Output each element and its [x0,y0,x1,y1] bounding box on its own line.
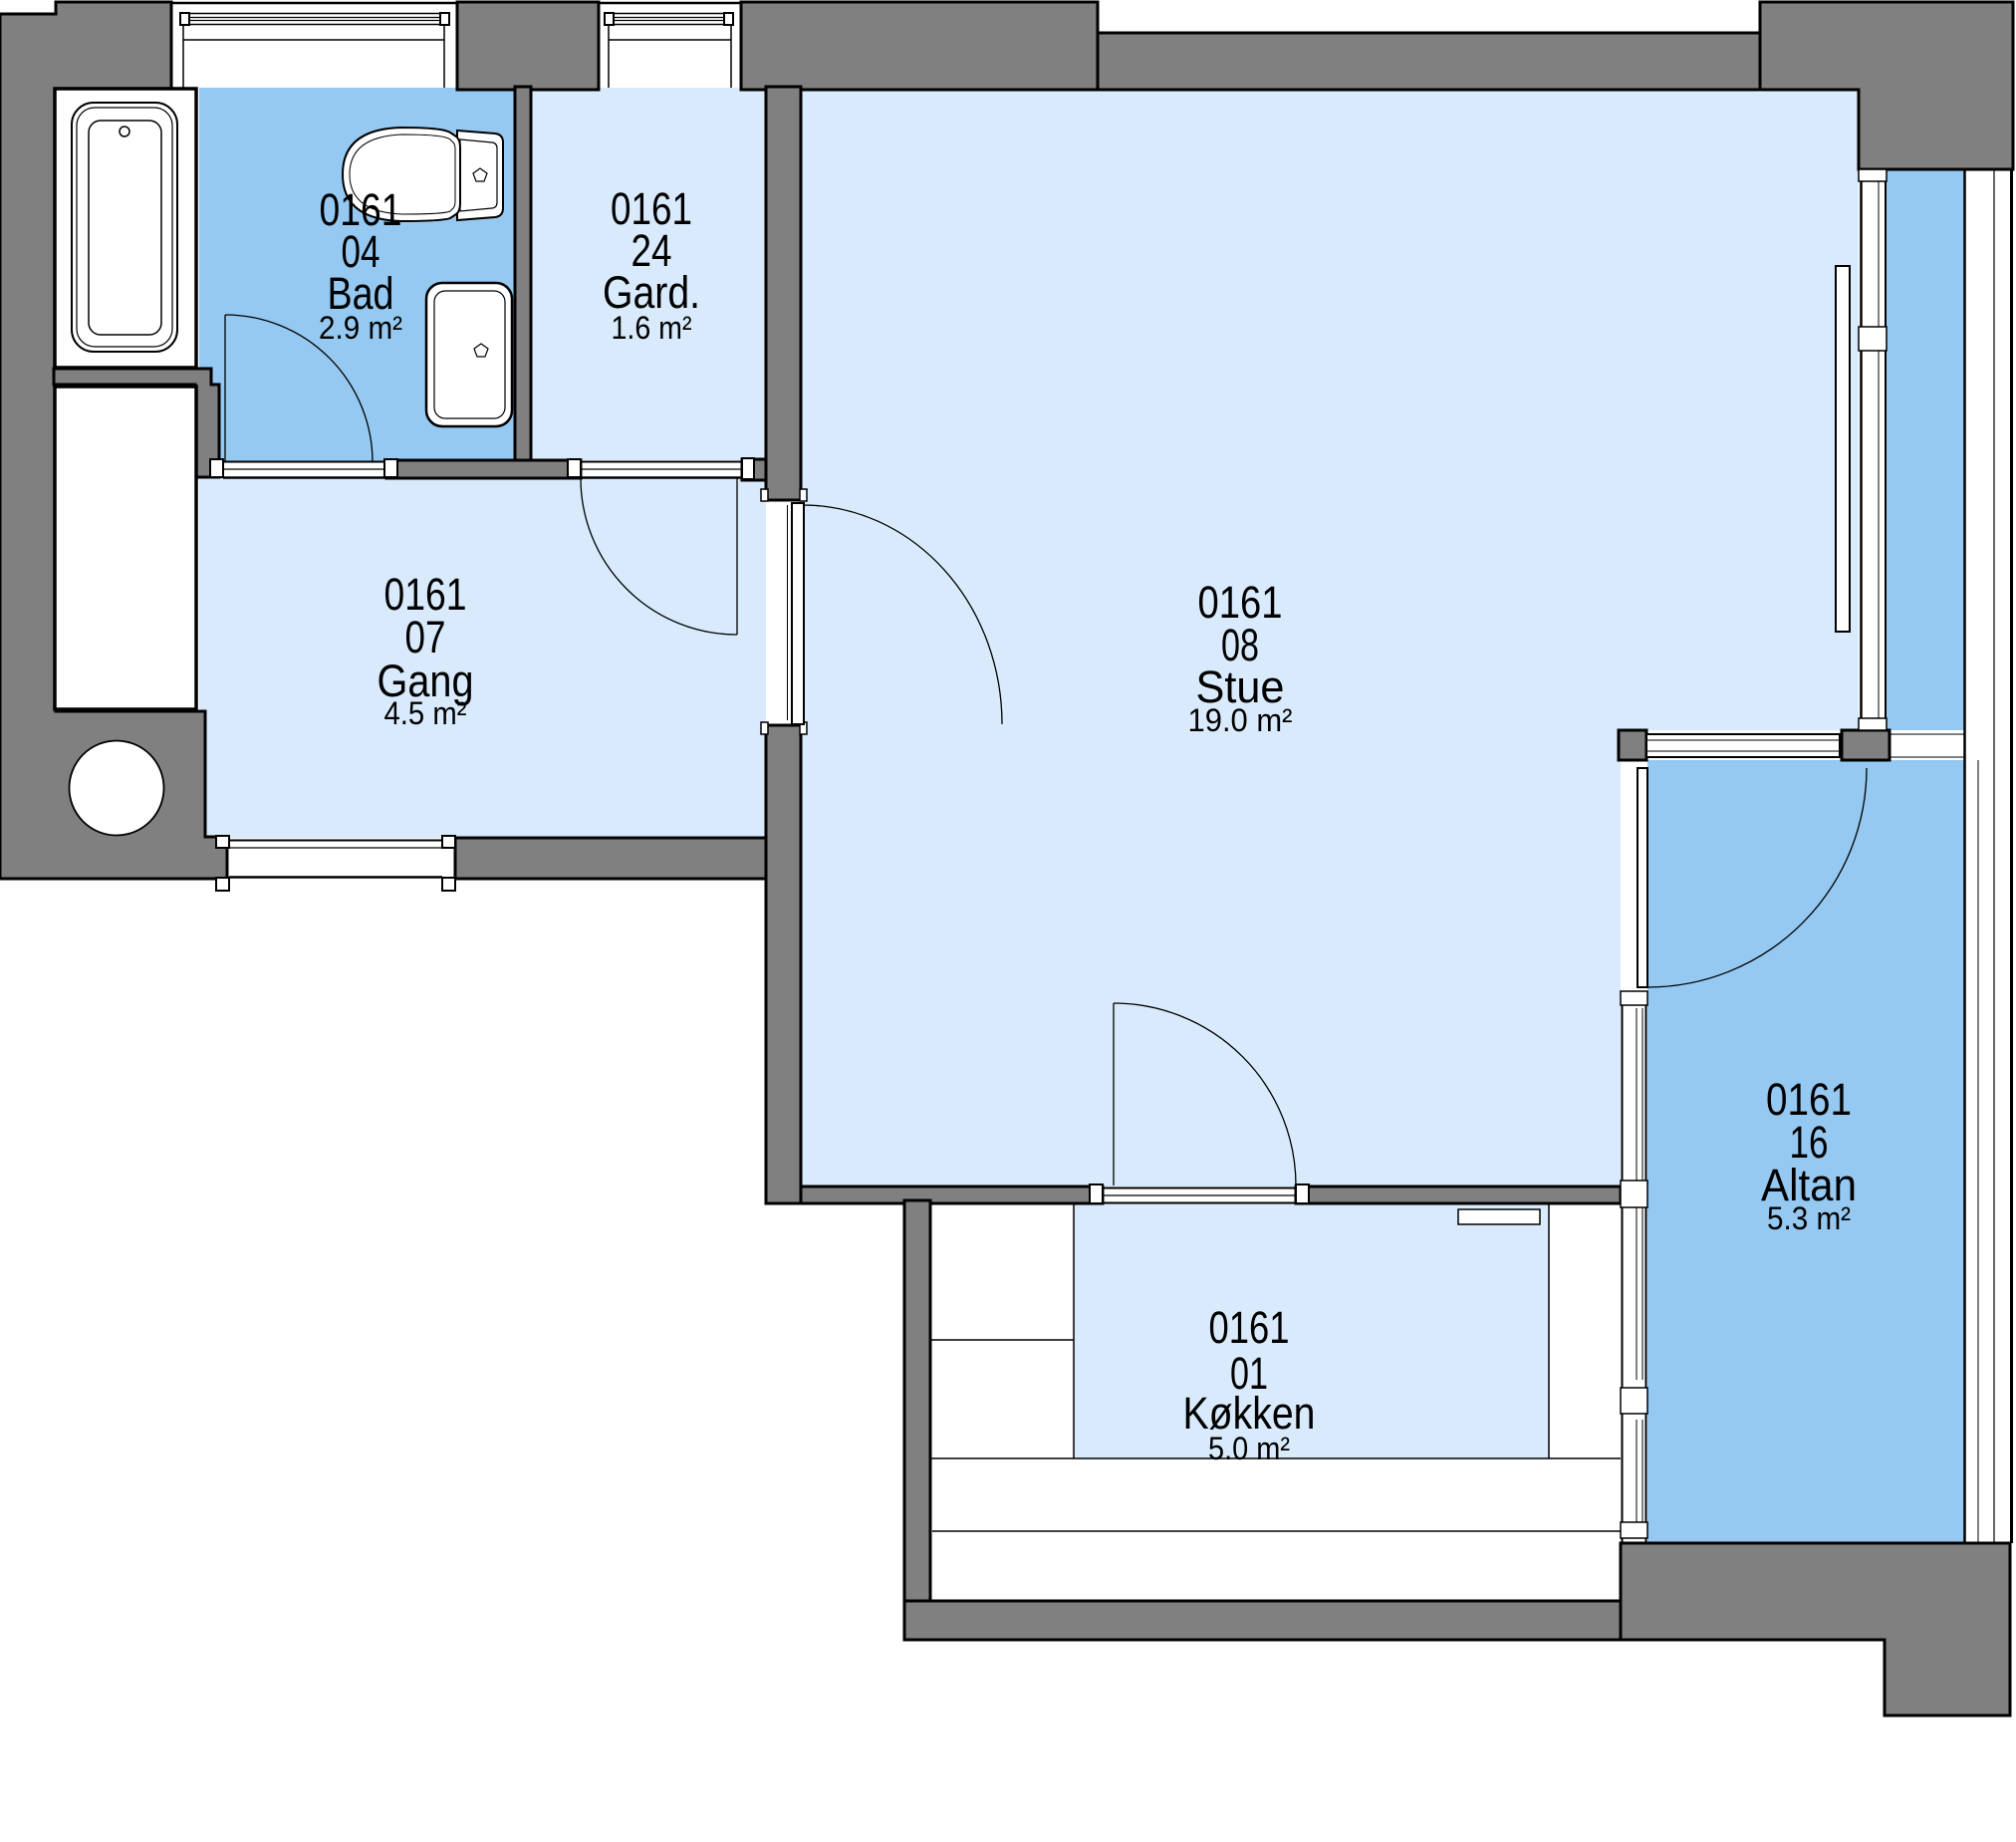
svg-text:19.0 m²: 19.0 m² [1188,702,1293,738]
svg-text:5.0 m²: 5.0 m² [1208,1431,1290,1466]
svg-text:5.3 m²: 5.3 m² [1767,1200,1851,1236]
svg-text:0161: 0161 [1209,1302,1290,1353]
svg-text:4.5 m²: 4.5 m² [384,695,467,731]
svg-text:1.6 m²: 1.6 m² [612,310,692,346]
svg-text:2.9 m²: 2.9 m² [319,310,402,346]
